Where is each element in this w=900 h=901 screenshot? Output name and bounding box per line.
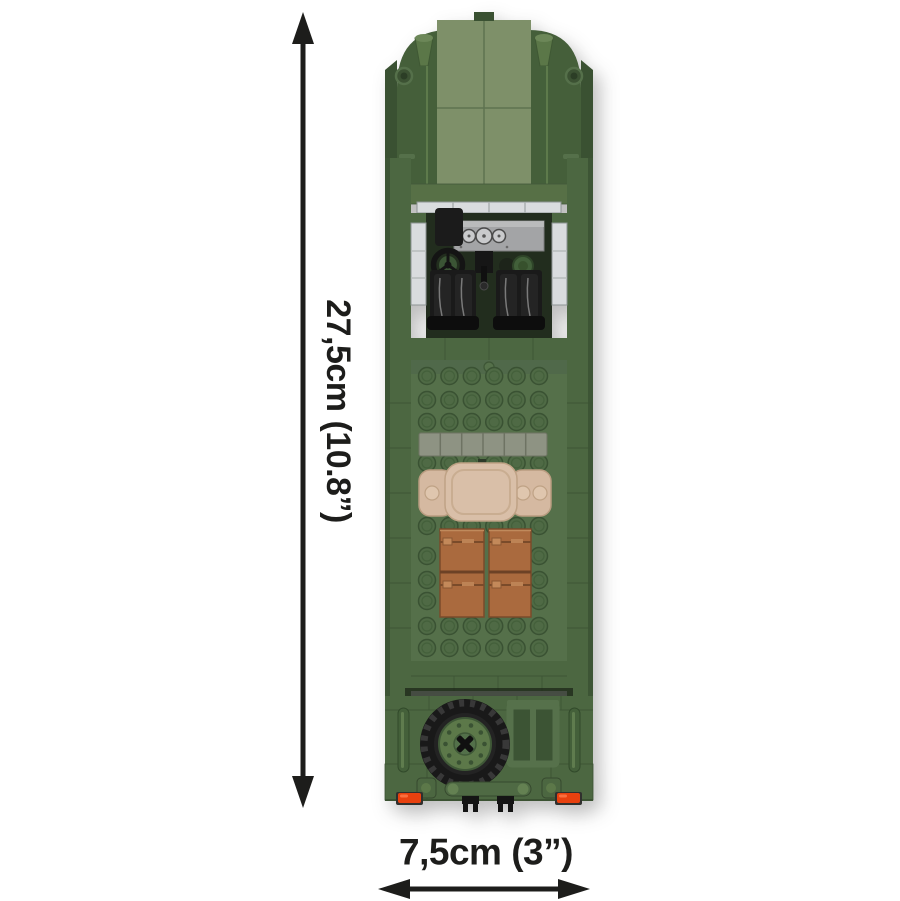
product-photo-truck-top-view [377,8,601,814]
cab-window-left [411,223,426,305]
tow-bar [445,782,531,796]
product-dimension-figure: { "dimensions": { "height_label": "27,5c… [0,0,900,900]
hitch-left [462,796,479,812]
rear-handle-left [398,708,409,772]
cab-window-right [552,223,567,305]
bench-tile-row [419,433,547,456]
headlight-right-icon [566,68,582,84]
truck-hood [437,12,531,192]
width-dimension-arrow-icon [378,877,590,901]
tail-light-right [555,792,582,805]
rear-handle-right [569,708,580,772]
headlight-left-icon [396,68,412,84]
seat-right [493,270,545,330]
dashboard [454,221,544,251]
height-dimension-arrow-icon [287,12,319,808]
tail-light-left [396,792,423,805]
width-dimension-label: 7,5cm (3”) [399,834,573,871]
rear-rack-frame [507,700,559,764]
cab-rear-wall [401,338,577,360]
spare-tire [420,699,510,789]
seat-left [427,270,479,330]
bed-rear-wall [405,661,573,700]
height-dimension-label: 27,5cm (10.8”) [321,299,355,523]
hitch-right [497,796,514,812]
